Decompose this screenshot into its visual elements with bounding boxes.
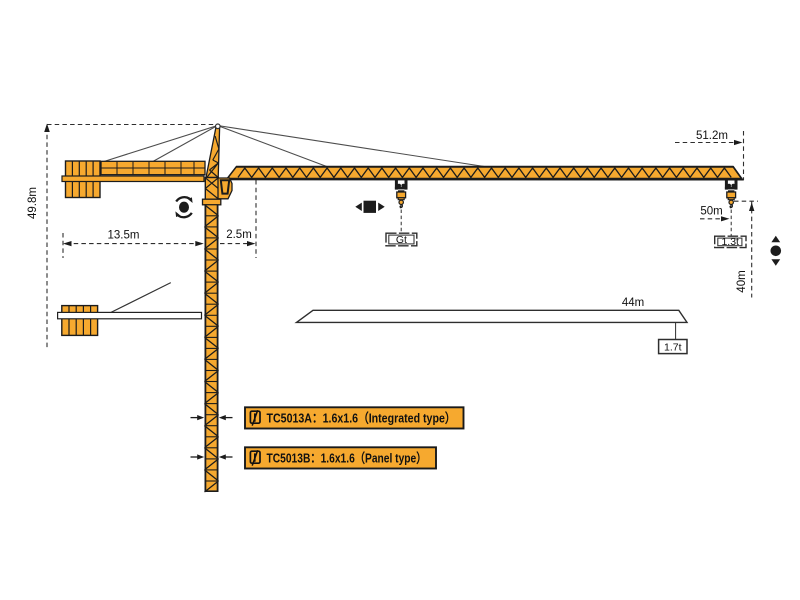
svg-text:Gt: Gt [396, 234, 407, 246]
svg-text:2.5m: 2.5m [226, 229, 252, 241]
svg-text:13.5m: 13.5m [108, 230, 140, 242]
svg-text:50m: 50m [700, 206, 722, 218]
svg-text:TC5013A：1.6x1.6（Integrated typ: TC5013A：1.6x1.6（Integrated type） [267, 410, 456, 425]
svg-text:1.3t: 1.3t [721, 236, 739, 248]
svg-text:51.2m: 51.2m [696, 130, 728, 142]
svg-text:49.8m: 49.8m [27, 187, 39, 219]
svg-text:1.7t: 1.7t [664, 341, 682, 353]
svg-text:40m: 40m [736, 270, 748, 292]
svg-text:TC5013B：1.6x1.6（Panel type）: TC5013B：1.6x1.6（Panel type） [267, 450, 427, 465]
svg-text:44m: 44m [622, 297, 644, 309]
